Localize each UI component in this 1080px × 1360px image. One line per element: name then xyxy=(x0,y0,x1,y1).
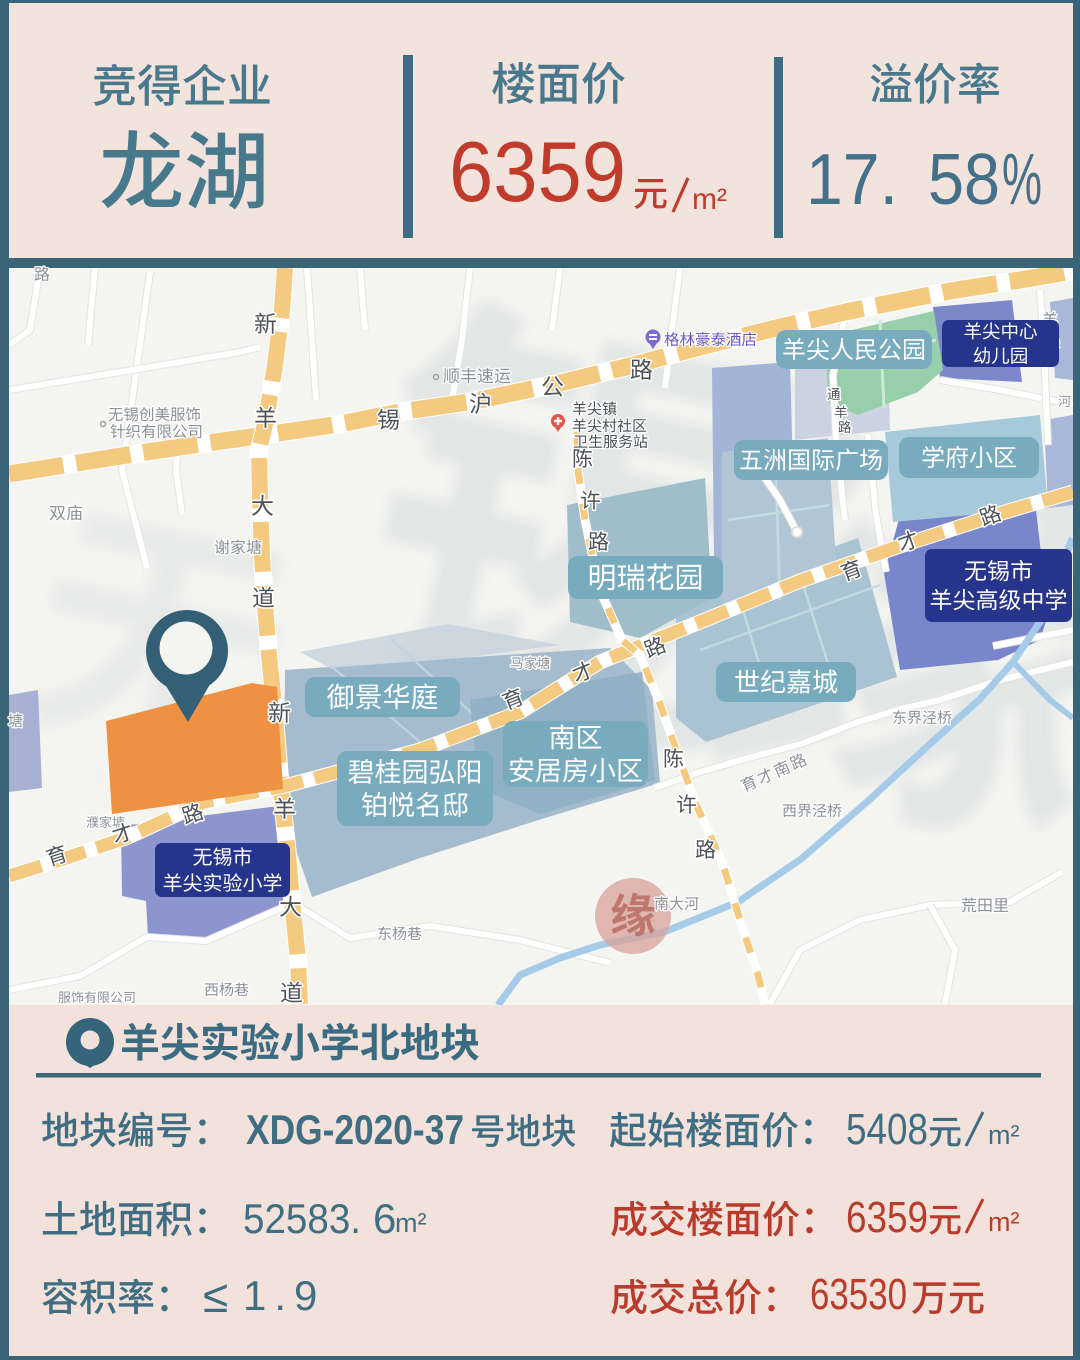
svg-text:58: 58 xyxy=(928,140,1000,220)
svg-text:63530: 63530 xyxy=(810,1270,907,1319)
svg-text:m²: m² xyxy=(988,1120,1019,1150)
svg-text:5408: 5408 xyxy=(846,1105,928,1154)
svg-text:1.9: 1.9 xyxy=(243,1272,325,1319)
svg-text:6359: 6359 xyxy=(846,1193,928,1242)
svg-text:m²: m² xyxy=(988,1207,1019,1237)
svg-text:%: % xyxy=(1002,140,1042,220)
svg-text:XDG-2020-37: XDG-2020-37 xyxy=(246,1106,464,1153)
svg-text:m²: m² xyxy=(395,1208,426,1238)
svg-text:6: 6 xyxy=(373,1195,396,1242)
svg-text:17.: 17. xyxy=(806,140,898,220)
svg-text:m²: m² xyxy=(692,183,727,216)
svg-text:52583.: 52583. xyxy=(243,1195,361,1242)
svg-text:6359: 6359 xyxy=(449,125,626,220)
svg-text:≤: ≤ xyxy=(203,1270,228,1322)
